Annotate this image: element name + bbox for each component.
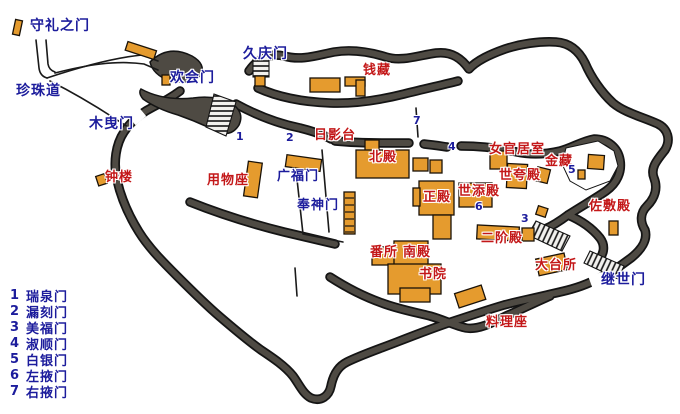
building-inner-nw-a	[413, 158, 428, 171]
site-label-ryoriza: 料理座	[486, 316, 528, 329]
site-label-nikaiden: 二阶殿	[481, 232, 523, 245]
site-label-yohokoriden: 世夸殿	[499, 169, 541, 182]
building-shoin-annex	[400, 288, 430, 302]
gate-label-kofuku: 广福门	[277, 170, 319, 183]
gate-label-hoshin: 奉神门	[297, 199, 339, 212]
building-ryoriza	[455, 285, 486, 308]
map-number-6: 6	[475, 201, 483, 212]
site-label-nanden: 南殿	[403, 246, 431, 259]
shuri-castle-map: 守礼之门 珍珠道 木曳门 欢会门 久庆门 广福门 奉神门 继世门 钱藏 日影台 …	[0, 0, 680, 414]
building-nikaiden-annex	[522, 228, 534, 241]
legend-number: 4	[10, 336, 26, 351]
gate-label-shurei: 守礼之门	[30, 19, 90, 33]
gate-label-keisei: 继世门	[601, 273, 646, 287]
map-number-3: 3	[521, 213, 529, 224]
gate-label-kobiki: 木曳门	[89, 117, 134, 131]
site-label-hokuden: 北殿	[369, 151, 397, 164]
building-bifuku-gate	[536, 206, 548, 218]
site-label-hikagedai: 日影台	[314, 129, 356, 142]
map-number-7: 7	[413, 115, 421, 126]
building-inner-nw-b	[430, 160, 442, 173]
site-label-bansho: 番所	[370, 246, 398, 259]
legend-number: 5	[10, 352, 26, 367]
gate-label-kyukei: 久庆门	[243, 47, 288, 61]
site-label-yomotsuza: 用物座	[207, 174, 249, 187]
legend-number: 6	[10, 368, 26, 383]
map-number-5: 5	[568, 164, 576, 175]
site-label-yosoeden: 世添殿	[458, 185, 500, 198]
building-kyukei-gate	[255, 76, 265, 86]
legend-number: 1	[10, 288, 26, 303]
building-kankai-gate	[162, 75, 170, 85]
building-shurei-gate	[13, 19, 23, 35]
site-label-nyokan: 女官居室	[489, 143, 545, 156]
building-seiden-porch	[413, 188, 420, 206]
legend-number: 7	[10, 384, 26, 399]
legend-number: 3	[10, 320, 26, 335]
buildings	[13, 19, 618, 307]
legend-item: 7 右掖门	[10, 383, 68, 399]
building-ne-store	[588, 154, 605, 169]
gate-legend: 1 瑞泉门 2 漏刻门 3 美福门 4 淑顺门 5 白银门 6 左掖门 7 右掖…	[10, 287, 68, 399]
building-zenikura-c	[356, 80, 365, 96]
legend-number: 2	[10, 304, 26, 319]
building-shirogane-gate	[578, 170, 585, 179]
building-zenikura-a	[310, 78, 340, 92]
site-label-zenikura: 钱藏	[363, 64, 391, 77]
map-number-2: 2	[286, 132, 294, 143]
legend-gate-name: 右掖门	[26, 382, 68, 401]
site-label-shoro: 钟楼	[105, 171, 133, 184]
castle-map-drawing	[0, 0, 680, 414]
map-number-1: 1	[236, 131, 244, 142]
gate-label-kankai: 欢会门	[170, 71, 215, 85]
building-sashikiden	[609, 221, 618, 235]
map-number-4: 4	[448, 141, 456, 152]
site-label-odaidokoro: 大台所	[535, 259, 577, 272]
site-label-sashikiden: 佐敷殿	[589, 200, 631, 213]
building-seiden-annex	[433, 215, 451, 239]
road-label-pearl: 珍珠道	[16, 84, 61, 98]
site-label-seiden: 正殿	[423, 191, 451, 204]
site-label-shoin: 书院	[419, 268, 447, 281]
